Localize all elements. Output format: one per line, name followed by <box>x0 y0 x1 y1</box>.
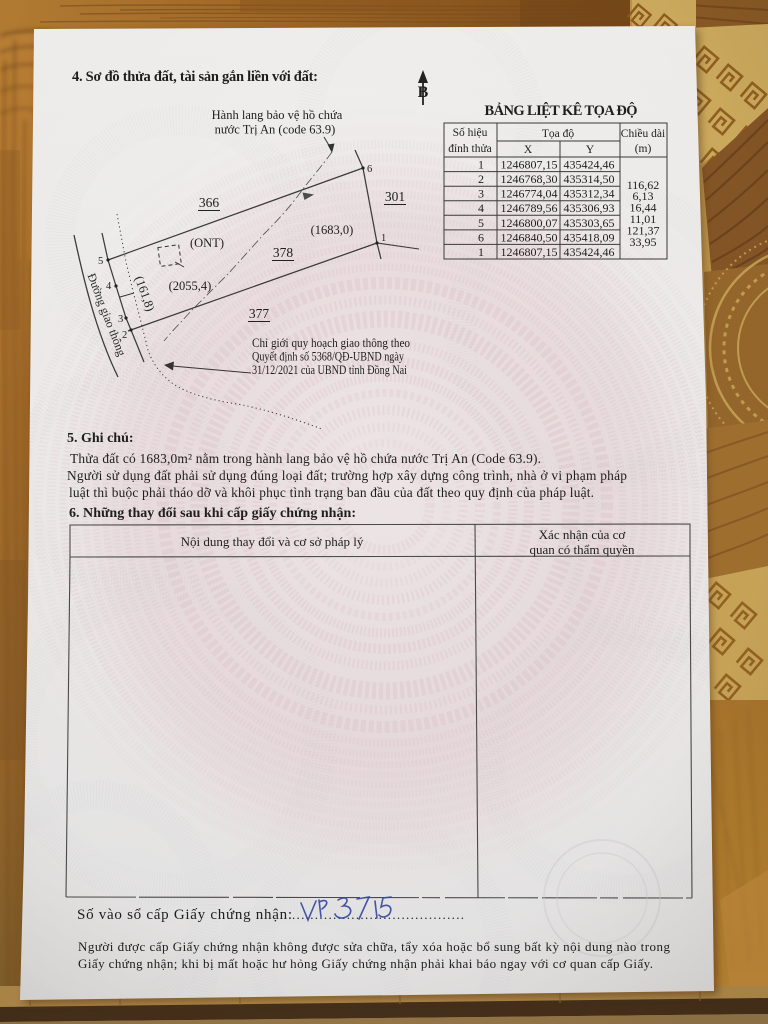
svg-text:31/12/2021 của UBND tỉnh Đồng: 31/12/2021 của UBND tỉnh Đồng Nai <box>252 363 408 377</box>
svg-text:377: 377 <box>249 306 270 321</box>
svg-text:(2055,4): (2055,4) <box>169 279 212 293</box>
svg-text:1246840,50: 1246840,50 <box>501 230 558 244</box>
svg-text:Chỉ giới quy hoạch giao thông: Chỉ giới quy hoạch giao thông theo <box>252 336 410 350</box>
svg-text:Tọa độ: Tọa độ <box>542 128 575 140</box>
svg-text:1246807,15: 1246807,15 <box>501 158 558 172</box>
svg-text:4: 4 <box>478 201 484 215</box>
svg-text:Giấy chứng nhận; khi bị mất ho: Giấy chứng nhận; khi bị mất hoặc hư hỏng… <box>78 956 653 971</box>
svg-text:1: 1 <box>478 245 484 259</box>
svg-text:6. Những thay đổi sau khi cấp: 6. Những thay đổi sau khi cấp giấy chứng… <box>69 506 356 521</box>
svg-text:..............................: ...................................... <box>292 907 464 922</box>
svg-text:Người sử dụng đất phải sử dụng: Người sử dụng đất phải sử dụng đúng loại… <box>67 468 627 483</box>
svg-text:B: B <box>418 84 429 101</box>
svg-text:Nội dung thay đổi và cơ sở phá: Nội dung thay đổi và cơ sở pháp lý <box>181 534 364 549</box>
svg-text:5: 5 <box>478 216 484 230</box>
svg-text:Người được cấp Giấy chứng nhận: Người được cấp Giấy chứng nhận không đượ… <box>78 939 671 954</box>
svg-text:nước Trị An (code 63.9): nước Trị An (code 63.9) <box>215 123 336 137</box>
svg-text:Chiều dài: Chiều dài <box>621 127 665 140</box>
svg-text:6: 6 <box>367 164 372 175</box>
svg-text:435303,65: 435303,65 <box>564 216 615 230</box>
svg-text:1246768,30: 1246768,30 <box>501 172 558 186</box>
svg-text:(1683,0): (1683,0) <box>311 223 354 237</box>
svg-text:luật thì buộc phải tháo dỡ và: luật thì buộc phải tháo dỡ và khôi phục … <box>69 485 594 500</box>
svg-text:X: X <box>524 144 533 156</box>
svg-text:Quyết định số 5368/QĐ-UBND ngà: Quyết định số 5368/QĐ-UBND ngày <box>252 350 405 364</box>
svg-text:1: 1 <box>381 233 386 244</box>
svg-text:1246774,04: 1246774,04 <box>501 187 558 201</box>
svg-text:435312,34: 435312,34 <box>564 187 615 201</box>
svg-text:1246789,56: 1246789,56 <box>501 201 558 215</box>
svg-text:378: 378 <box>273 245 294 260</box>
svg-text:đỉnh thửa: đỉnh thửa <box>448 143 492 155</box>
svg-text:5: 5 <box>98 256 103 267</box>
svg-text:5. Ghi chú:: 5. Ghi chú: <box>67 431 134 446</box>
svg-text:1: 1 <box>478 158 484 172</box>
svg-text:3: 3 <box>478 187 484 201</box>
svg-text:(m): (m) <box>635 143 652 155</box>
svg-text:435424,46: 435424,46 <box>564 245 615 259</box>
svg-text:435418,09: 435418,09 <box>564 230 615 244</box>
svg-text:435314,50: 435314,50 <box>564 172 615 186</box>
svg-text:Hành lang bảo vệ hồ chứa: Hành lang bảo vệ hồ chứa <box>212 108 343 122</box>
svg-text:33,95: 33,95 <box>630 235 657 249</box>
svg-text:435424,46: 435424,46 <box>564 158 615 172</box>
svg-text:301: 301 <box>385 189 405 204</box>
svg-text:2: 2 <box>478 172 484 186</box>
svg-text:Số hiệu: Số hiệu <box>453 126 488 139</box>
svg-text:Y: Y <box>586 144 595 156</box>
svg-text:1246800,07: 1246800,07 <box>501 216 558 230</box>
svg-text:4. Sơ đồ thửa đất, tài sản gắn: 4. Sơ đồ thửa đất, tài sản gắn liền với … <box>72 69 318 85</box>
svg-text:3: 3 <box>118 314 123 325</box>
svg-text:Thửa đất có 1683,0m² nằm trong: Thửa đất có 1683,0m² nằm trong hành lang… <box>70 451 541 466</box>
svg-text:quan có thẩm quyền: quan có thẩm quyền <box>529 542 635 557</box>
svg-text:6: 6 <box>478 230 484 244</box>
svg-text:BẢNG LIỆT KÊ TỌA ĐỘ: BẢNG LIỆT KÊ TỌA ĐỘ <box>485 102 638 119</box>
svg-text:366: 366 <box>199 195 220 210</box>
svg-text:Số vào sổ cấp Giấy chứng nhận:: Số vào sổ cấp Giấy chứng nhận: <box>77 907 292 923</box>
svg-text:Xác nhận của cơ: Xác nhận của cơ <box>539 527 627 542</box>
svg-text:(ONT): (ONT) <box>190 236 224 250</box>
svg-text:435306,93: 435306,93 <box>564 201 615 215</box>
svg-text:4: 4 <box>106 281 112 292</box>
svg-text:1246807,15: 1246807,15 <box>501 245 558 259</box>
